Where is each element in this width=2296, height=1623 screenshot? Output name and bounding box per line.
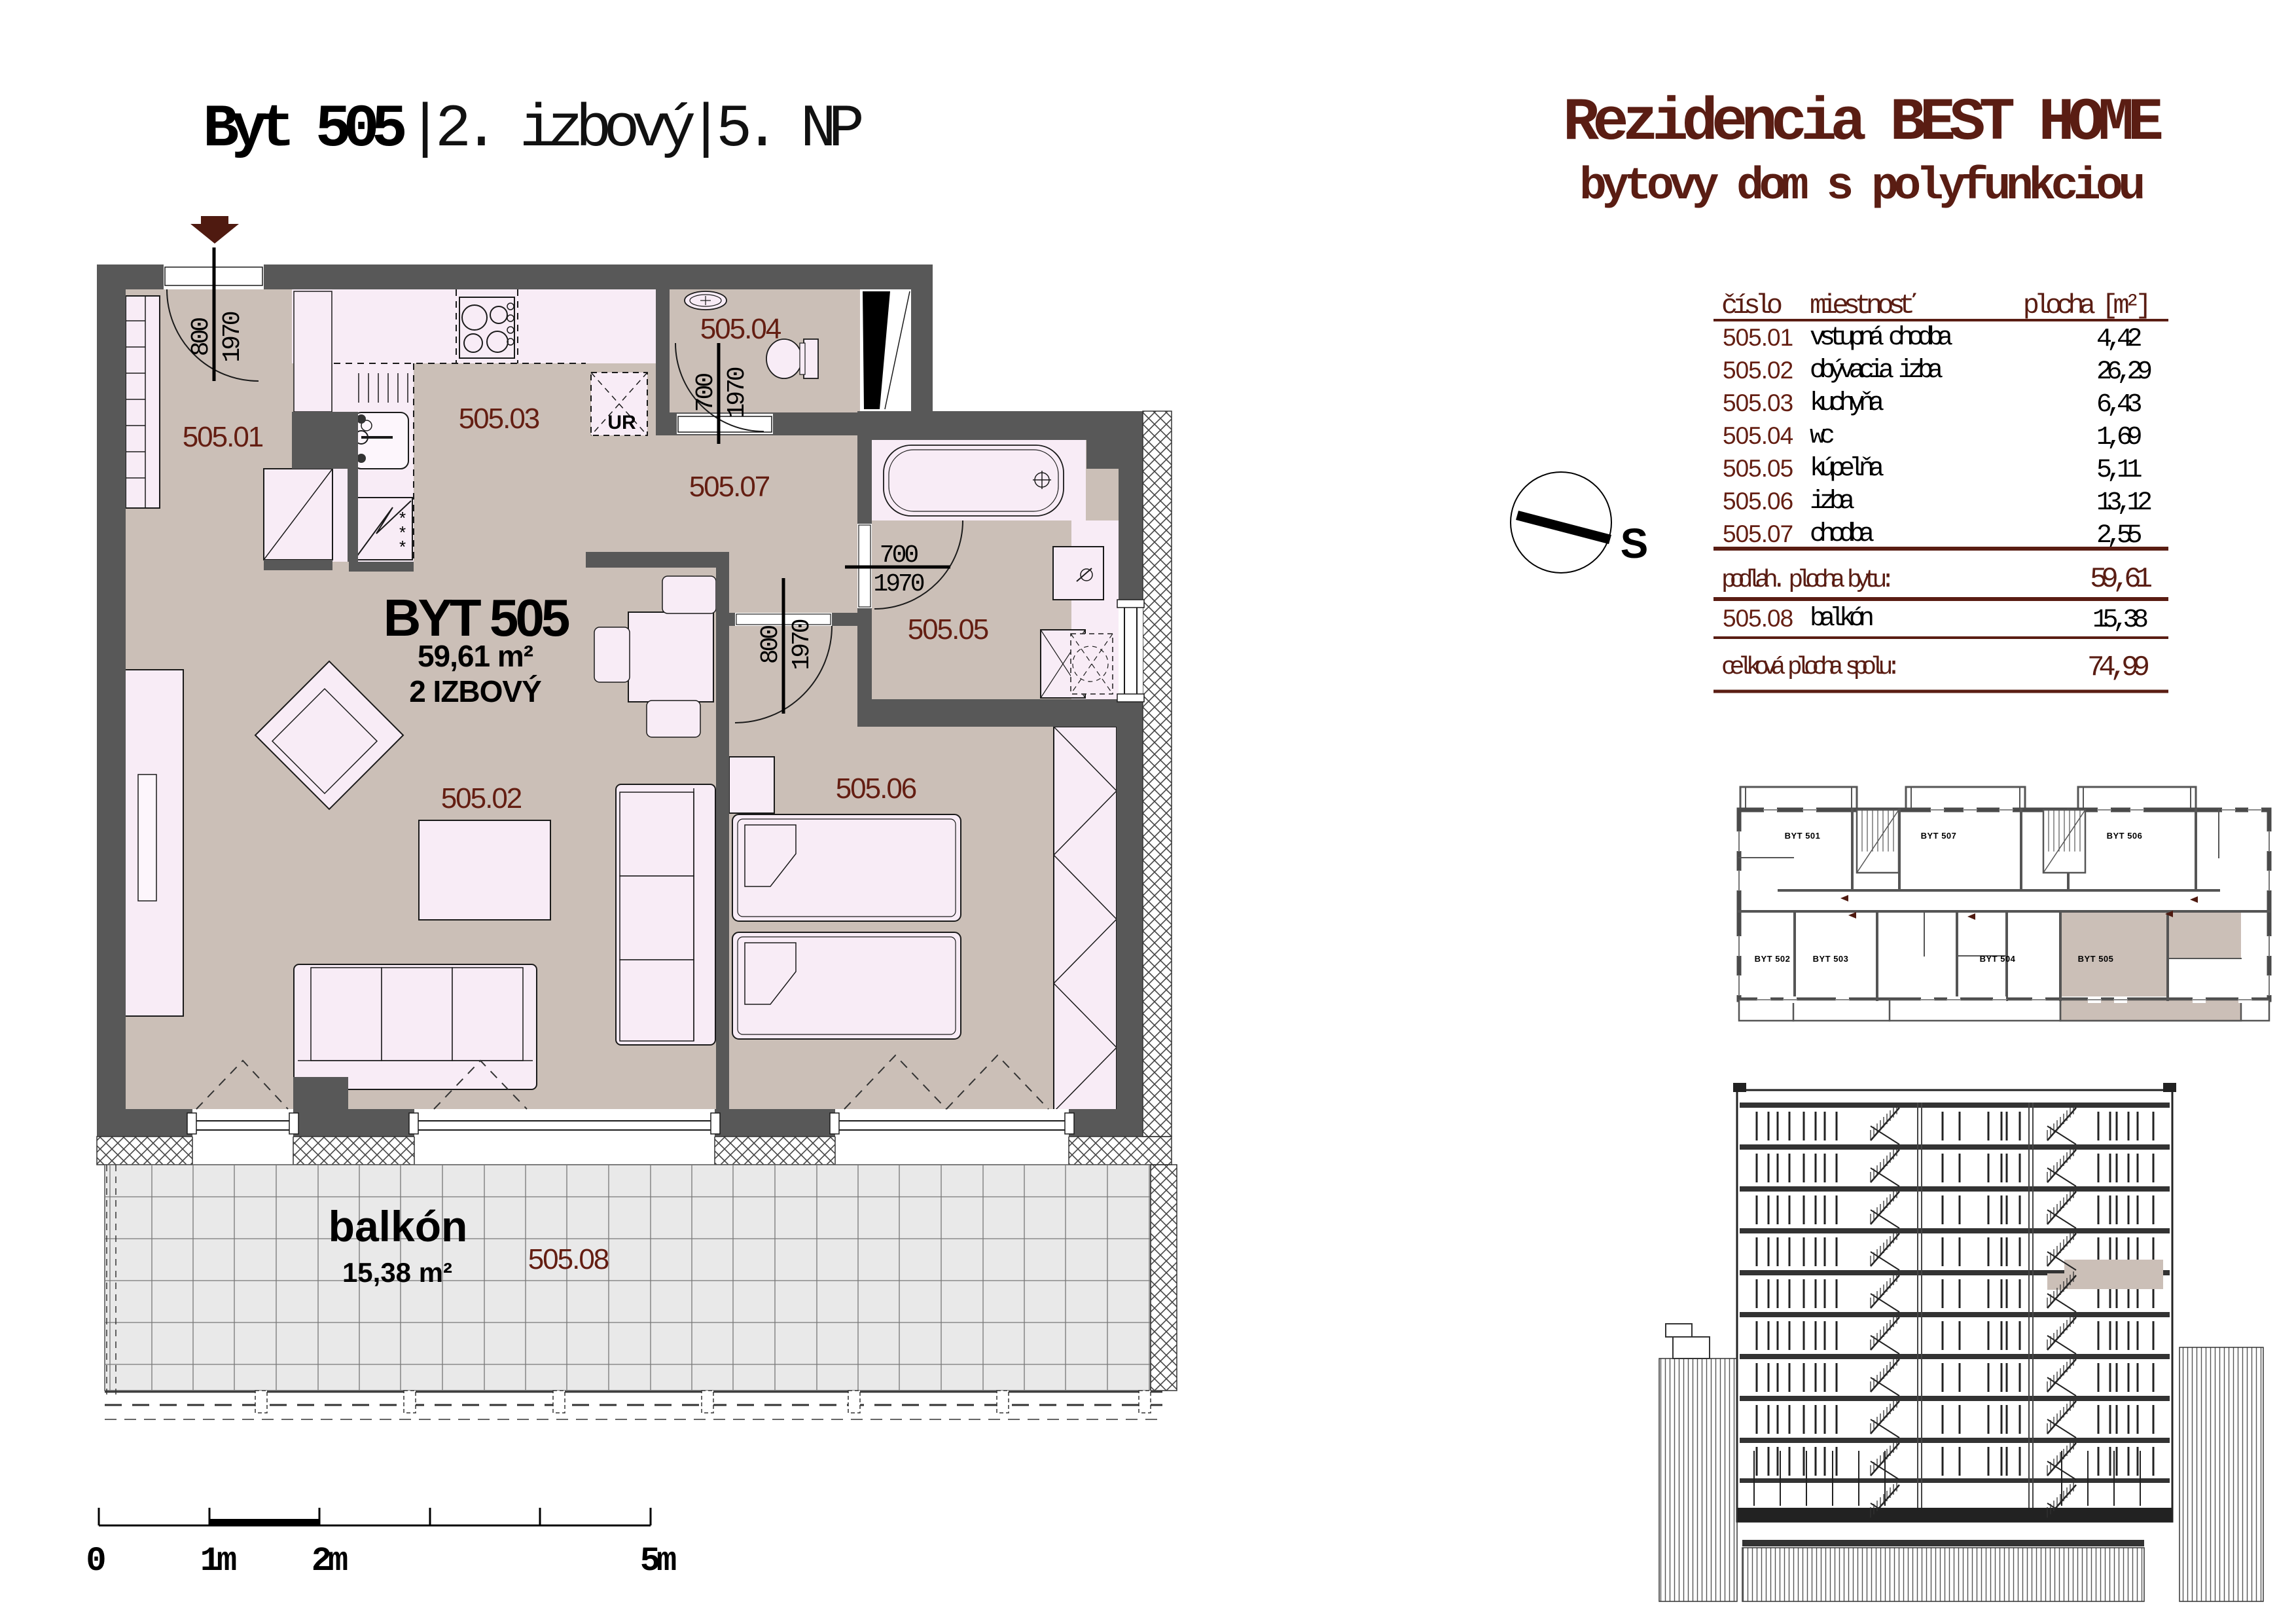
svg-text:505.08: 505.08 — [528, 1243, 609, 1275]
svg-text:800: 800 — [187, 318, 215, 357]
svg-text:celková plocha spolu:: celková plocha spolu: — [1721, 653, 1895, 682]
svg-text:505.02: 505.02 — [441, 782, 522, 814]
svg-text:BYT 501: BYT 501 — [1785, 831, 1821, 841]
svg-text:4,42: 4,42 — [2096, 325, 2142, 354]
svg-text:plocha [m²]: plocha [m²] — [2023, 290, 2147, 321]
svg-text:chodba: chodba — [1810, 520, 1874, 549]
svg-text:505.03: 505.03 — [459, 403, 539, 435]
svg-text:74,99: 74,99 — [2087, 651, 2149, 684]
svg-text:balkón: balkón — [329, 1202, 468, 1250]
svg-text:2 IZBOVÝ: 2 IZBOVÝ — [409, 674, 541, 708]
svg-text:505.05: 505.05 — [1723, 455, 1793, 482]
svg-text:BYT 502: BYT 502 — [1755, 954, 1791, 964]
svg-text:miestnosť: miestnosť — [1810, 290, 1917, 321]
svg-text:26,29: 26,29 — [2096, 357, 2151, 387]
svg-text:6,43: 6,43 — [2096, 390, 2142, 420]
svg-text:800: 800 — [757, 626, 785, 665]
svg-text:1970: 1970 — [723, 367, 751, 418]
svg-text:BYT 503: BYT 503 — [1813, 954, 1849, 964]
svg-text:505.02: 505.02 — [1723, 357, 1793, 384]
svg-text:BYT 505: BYT 505 — [2078, 954, 2114, 964]
svg-text:5m: 5m — [640, 1542, 676, 1580]
svg-text:balkón: balkón — [1810, 604, 1873, 634]
svg-text:2,55: 2,55 — [2096, 521, 2142, 551]
svg-text:UR: UR — [607, 412, 636, 433]
svg-text:13,12: 13,12 — [2096, 488, 2151, 518]
svg-text:bytovy dom s polyfunkciou: bytovy dom s polyfunkciou — [1579, 161, 2143, 213]
svg-text:obývacia izba: obývacia izba — [1810, 356, 1943, 386]
svg-text:505.05: 505.05 — [908, 613, 988, 646]
svg-text:15,38: 15,38 — [2092, 606, 2147, 635]
svg-text:700: 700 — [880, 541, 918, 570]
svg-text:BYT 507: BYT 507 — [1921, 831, 1957, 841]
svg-text:BYT 504: BYT 504 — [1980, 954, 2016, 964]
svg-text:1970: 1970 — [219, 312, 247, 362]
svg-text:505.01: 505.01 — [183, 421, 263, 453]
svg-text:2m: 2m — [312, 1542, 348, 1580]
svg-text:S: S — [1621, 520, 1649, 567]
svg-text:15,38 m²: 15,38 m² — [342, 1257, 452, 1288]
svg-text:505.08: 505.08 — [1723, 605, 1793, 632]
svg-text:Byt 505: Byt 505 — [203, 95, 404, 164]
svg-text:1970: 1970 — [873, 570, 924, 598]
svg-text:Rezidencia BEST HOME: Rezidencia BEST HOME — [1563, 88, 2162, 157]
svg-text:505.07: 505.07 — [689, 471, 770, 503]
svg-text:505.04: 505.04 — [1723, 422, 1793, 449]
svg-text:BYT 505: BYT 505 — [384, 589, 569, 647]
svg-text:1970: 1970 — [788, 619, 816, 670]
svg-text:BYT 506: BYT 506 — [2107, 831, 2143, 841]
svg-text:59,61: 59,61 — [2090, 563, 2152, 596]
svg-text:podlah. plocha bytu:: podlah. plocha bytu: — [1721, 566, 1890, 594]
svg-text:700: 700 — [692, 374, 720, 412]
svg-text:|2. izbový|5. NP: |2. izbový|5. NP — [407, 95, 862, 164]
svg-text:*: * — [399, 537, 406, 556]
svg-text:vstupná chodba: vstupná chodba — [1810, 323, 1952, 353]
svg-text:kúpelňa: kúpelňa — [1810, 454, 1884, 484]
svg-text:505.07: 505.07 — [1723, 520, 1793, 547]
svg-text:505.03: 505.03 — [1723, 390, 1793, 416]
svg-text:izba: izba — [1810, 487, 1854, 517]
svg-text:5,11: 5,11 — [2096, 456, 2142, 485]
svg-text:kuchyňa: kuchyňa — [1810, 389, 1884, 418]
svg-text:1m: 1m — [200, 1542, 236, 1580]
svg-text:505.06: 505.06 — [1723, 488, 1793, 515]
svg-text:505.06: 505.06 — [836, 773, 916, 805]
svg-text:číslo: číslo — [1721, 290, 1782, 321]
svg-text:505.04: 505.04 — [700, 313, 781, 345]
svg-text:1,69: 1,69 — [2096, 423, 2142, 452]
svg-text:59,61 m²: 59,61 m² — [418, 639, 533, 673]
svg-text:505.01: 505.01 — [1723, 324, 1793, 351]
svg-text:0: 0 — [86, 1542, 106, 1580]
